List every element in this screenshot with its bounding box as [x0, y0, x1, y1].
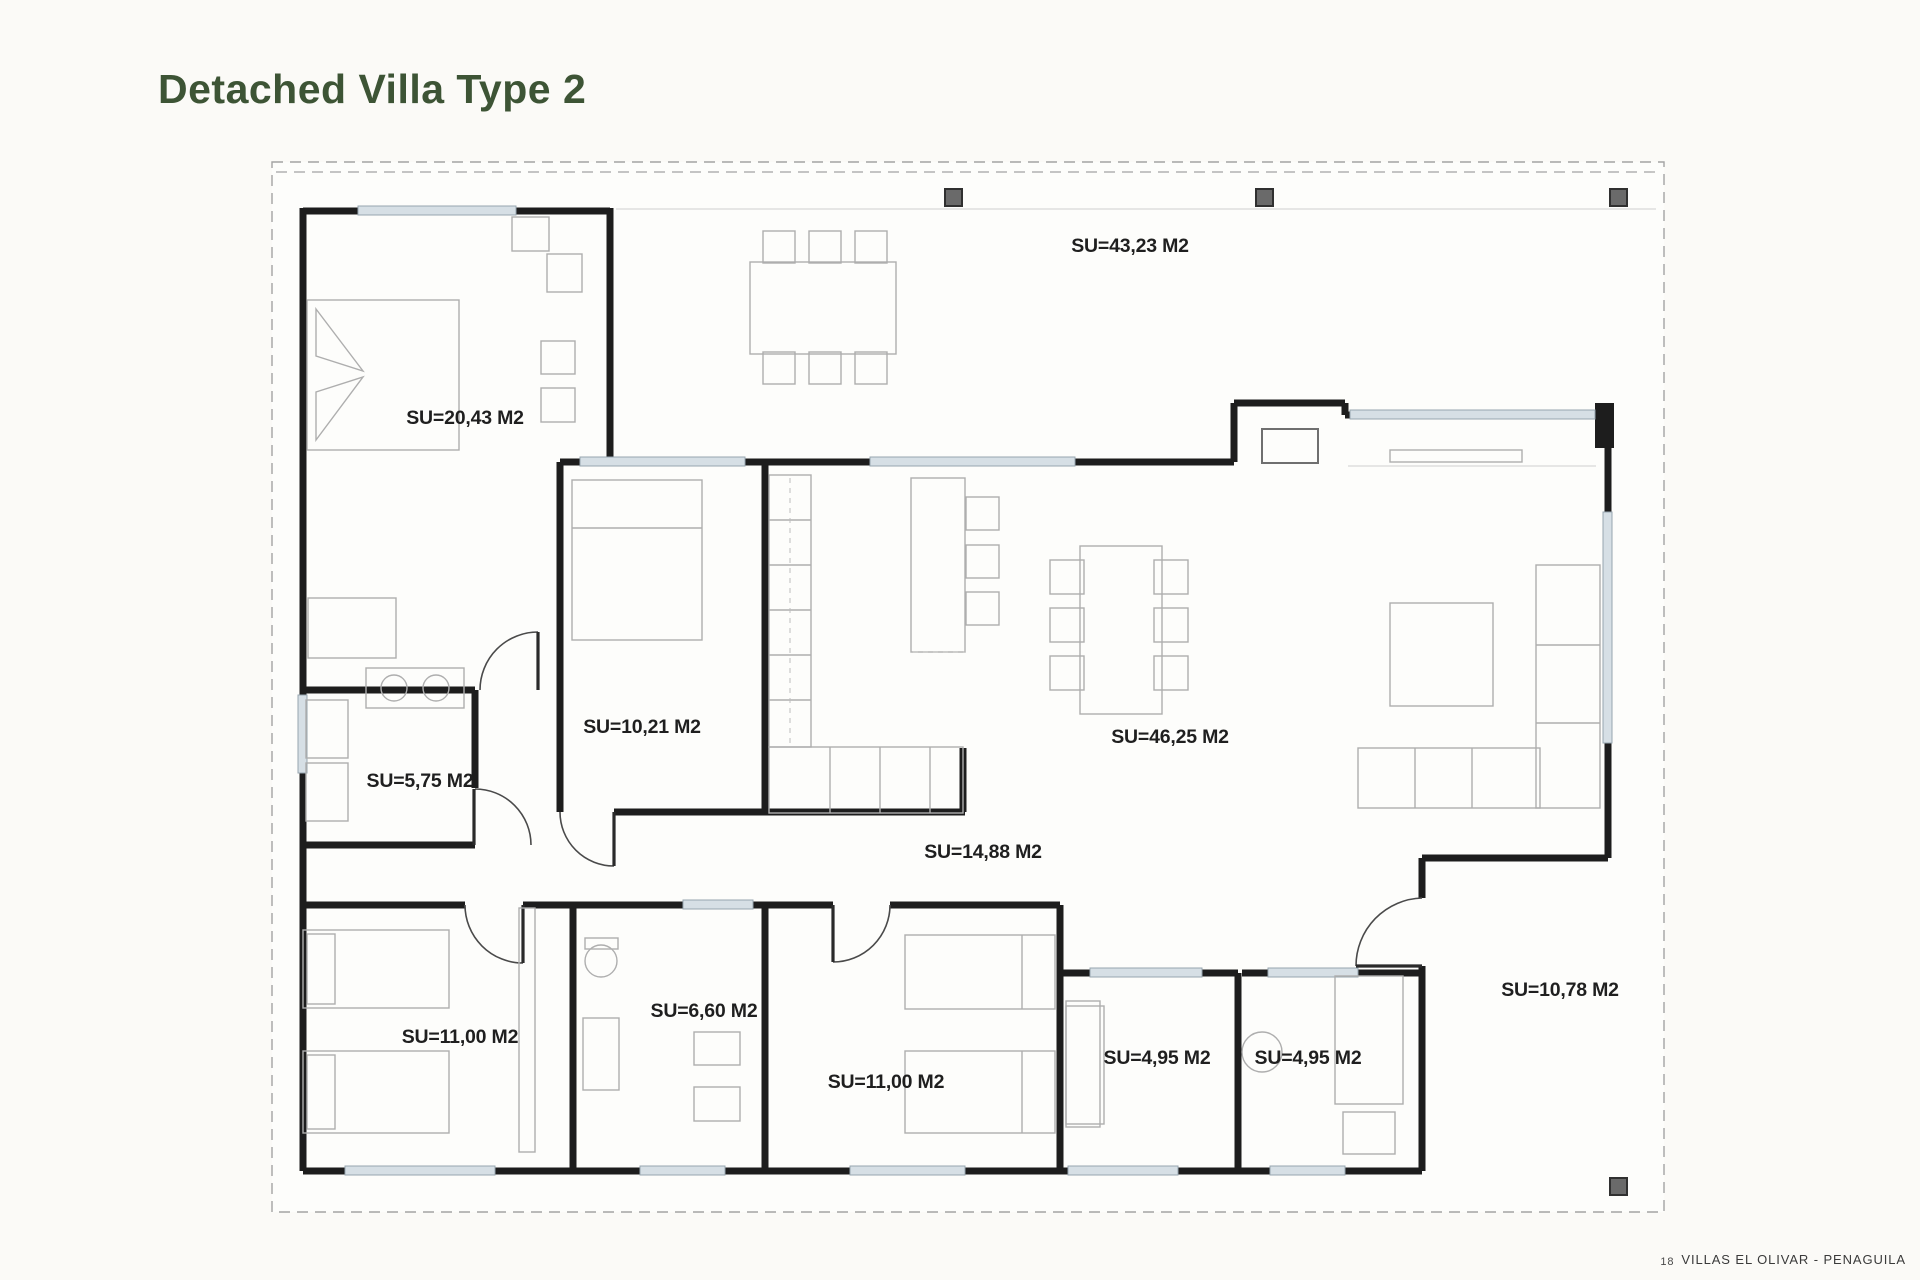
- window: [1068, 1166, 1178, 1175]
- room-label-bedroom-2: SU=10,21 M2: [583, 716, 701, 738]
- room-label-terrace: SU=43,23 M2: [1071, 235, 1189, 257]
- window: [850, 1166, 965, 1175]
- room-label-bathroom-1: SU=6,60 M2: [651, 1000, 758, 1022]
- window: [870, 457, 1075, 466]
- floor-plan: SU=43,23 M2 SU=20,43 M2 SU=10,21 M2 SU=5…: [0, 0, 1920, 1280]
- room-label-hallway-kitchen: SU=14,88 M2: [924, 841, 1042, 863]
- window: [683, 900, 753, 909]
- page-footer: 18VILLAS EL OLIVAR - PENAGUILA: [1660, 1252, 1906, 1267]
- room-label-bedroom-3: SU=11,00 M2: [402, 1026, 519, 1048]
- room-label-utility-room: SU=5,75 M2: [367, 770, 474, 792]
- brochure-page: Detached Villa Type 2: [0, 0, 1920, 1280]
- window: [640, 1166, 725, 1175]
- room-label-master-bedroom: SU=20,43 M2: [406, 407, 524, 429]
- pillar: [1610, 1178, 1627, 1195]
- window: [1090, 968, 1202, 977]
- window: [358, 206, 516, 215]
- window: [580, 457, 745, 466]
- pillar: [1256, 189, 1273, 206]
- page-number: 18: [1660, 1256, 1674, 1268]
- room-label-bedroom-4: SU=11,00 M2: [828, 1071, 945, 1093]
- room-label-bathroom-3: SU=4,95 M2: [1255, 1047, 1362, 1069]
- window: [345, 1166, 495, 1175]
- window: [1603, 512, 1612, 743]
- room-label-porch: SU=10,78 M2: [1501, 979, 1619, 1001]
- room-label-bathroom-2: SU=4,95 M2: [1104, 1047, 1211, 1069]
- room-label-living-dining: SU=46,25 M2: [1111, 726, 1229, 748]
- window: [1270, 1166, 1345, 1175]
- wall-corner-block: [1595, 403, 1614, 448]
- pillar: [1610, 189, 1627, 206]
- pillar: [945, 189, 962, 206]
- window: [1350, 410, 1595, 419]
- project-name: VILLAS EL OLIVAR - PENAGUILA: [1681, 1252, 1906, 1267]
